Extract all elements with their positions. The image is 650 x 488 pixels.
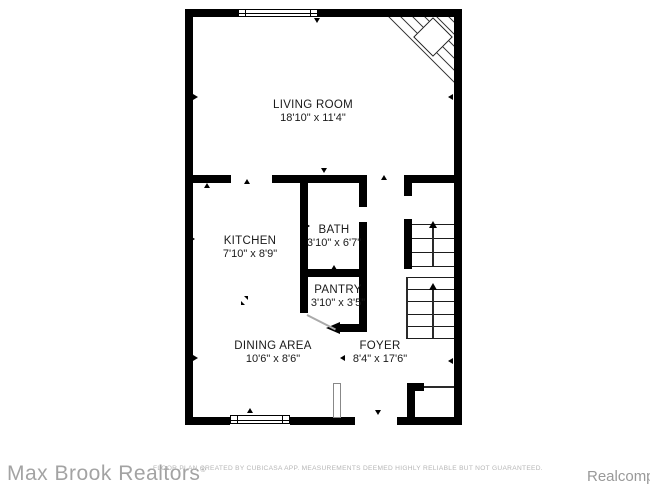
wall-closet-top [407, 383, 424, 391]
provider-name: Realcomp [587, 468, 650, 485]
wall-pantry-bottom [340, 324, 367, 332]
opening-marker-icon [204, 183, 210, 188]
room-label-kitchen: KITCHEN 7'10" x 8'9" [223, 235, 277, 261]
room-label-bath: BATH 3'10" x 6'7" [307, 224, 361, 250]
disclaimer-text: FLOOR PLAN CREATED BY CUBICASA APP. MEAS… [153, 465, 543, 472]
stair-tread [406, 338, 454, 339]
room-name: BATH [307, 224, 361, 237]
stair-tread [406, 238, 454, 239]
wall-mid-segment [404, 175, 454, 183]
window-top-icon [238, 9, 318, 17]
door-marker-icon [340, 355, 345, 361]
opening-marker-icon [375, 410, 381, 415]
window-bottom-icon [230, 415, 290, 424]
room-label-foyer: FOYER 8'4" x 17'6" [353, 340, 407, 366]
corner-fireplace-icon [385, 17, 454, 86]
window-divider [282, 416, 283, 423]
wall-stair-left [404, 219, 412, 269]
stair-tread [406, 252, 454, 253]
room-dimensions: 8'4" x 17'6" [353, 353, 407, 366]
stair-tread [406, 266, 454, 267]
fireplace-diamond [413, 17, 453, 57]
room-name: PANTRY [311, 284, 365, 297]
wall-mid-segment [272, 175, 367, 183]
wall-mid-segment [185, 175, 231, 183]
dining-marker-icon [244, 296, 248, 300]
stair-tread [406, 326, 454, 327]
window-divider [310, 10, 311, 16]
opening-marker-icon [314, 18, 320, 23]
room-dimensions: 10'6" x 8'6" [234, 353, 311, 366]
room-name: FOYER [353, 340, 407, 353]
wall-stair-stub [404, 183, 412, 196]
opening-marker-icon [381, 175, 387, 180]
wall-right [454, 9, 462, 425]
stair-tread [406, 301, 454, 302]
room-label-pantry: PANTRY 3'10" x 3'5" [311, 284, 365, 310]
wall-tick-icon [193, 355, 198, 361]
window-pane-line [231, 420, 289, 421]
stair-tread [406, 314, 454, 315]
window-pane-line [239, 13, 317, 14]
wall-tick-icon [448, 94, 453, 100]
wall-bottom-segment [290, 417, 355, 425]
opening-marker-icon [331, 178, 337, 183]
window-divider [245, 10, 246, 16]
opening-marker-icon [331, 265, 337, 270]
wall-tick-icon [448, 358, 453, 364]
opening-marker-icon [247, 408, 253, 413]
dining-marker-icon [241, 301, 245, 305]
opening-marker-icon [244, 179, 250, 184]
floor-plan-page: LIVING ROOM 18'10" x 11'4" KITCHEN 7'10"… [0, 0, 650, 488]
room-label-dining-area: DINING AREA 10'6" x 8'6" [234, 340, 311, 366]
room-label-living-room: LIVING ROOM 18'10" x 11'4" [273, 99, 353, 125]
room-dimensions: 7'10" x 8'9" [223, 248, 277, 261]
wall-bath-pantry-divider [300, 269, 367, 277]
wall-left [185, 9, 193, 425]
opening-marker-icon [321, 168, 327, 173]
stair-up-arrow-line [432, 290, 434, 338]
door-marker-icon [361, 223, 366, 229]
room-dimensions: 18'10" x 11'4" [273, 112, 353, 125]
room-name: DINING AREA [234, 340, 311, 353]
room-name: LIVING ROOM [273, 99, 353, 112]
wall-tick-icon [193, 94, 198, 100]
stair-up-arrow-icon [429, 221, 437, 228]
wall-top-segment [318, 9, 454, 17]
stair-edge-line [406, 277, 408, 338]
stair-tread [406, 277, 454, 278]
front-door-leaf-icon [333, 383, 341, 418]
room-dimensions: 3'10" x 3'5" [311, 297, 365, 310]
room-dimensions: 3'10" x 6'7" [307, 237, 361, 250]
stair-up-arrow-line [432, 228, 434, 266]
closet-shelf-line [424, 386, 454, 388]
wall-bath-right-upper [359, 175, 367, 207]
window-divider [237, 416, 238, 423]
wall-top-segment [185, 9, 238, 17]
wall-tick-icon [190, 236, 195, 242]
wall-bottom-segment [185, 417, 230, 425]
stair-up-arrow-icon [429, 283, 437, 290]
room-name: KITCHEN [223, 235, 277, 248]
